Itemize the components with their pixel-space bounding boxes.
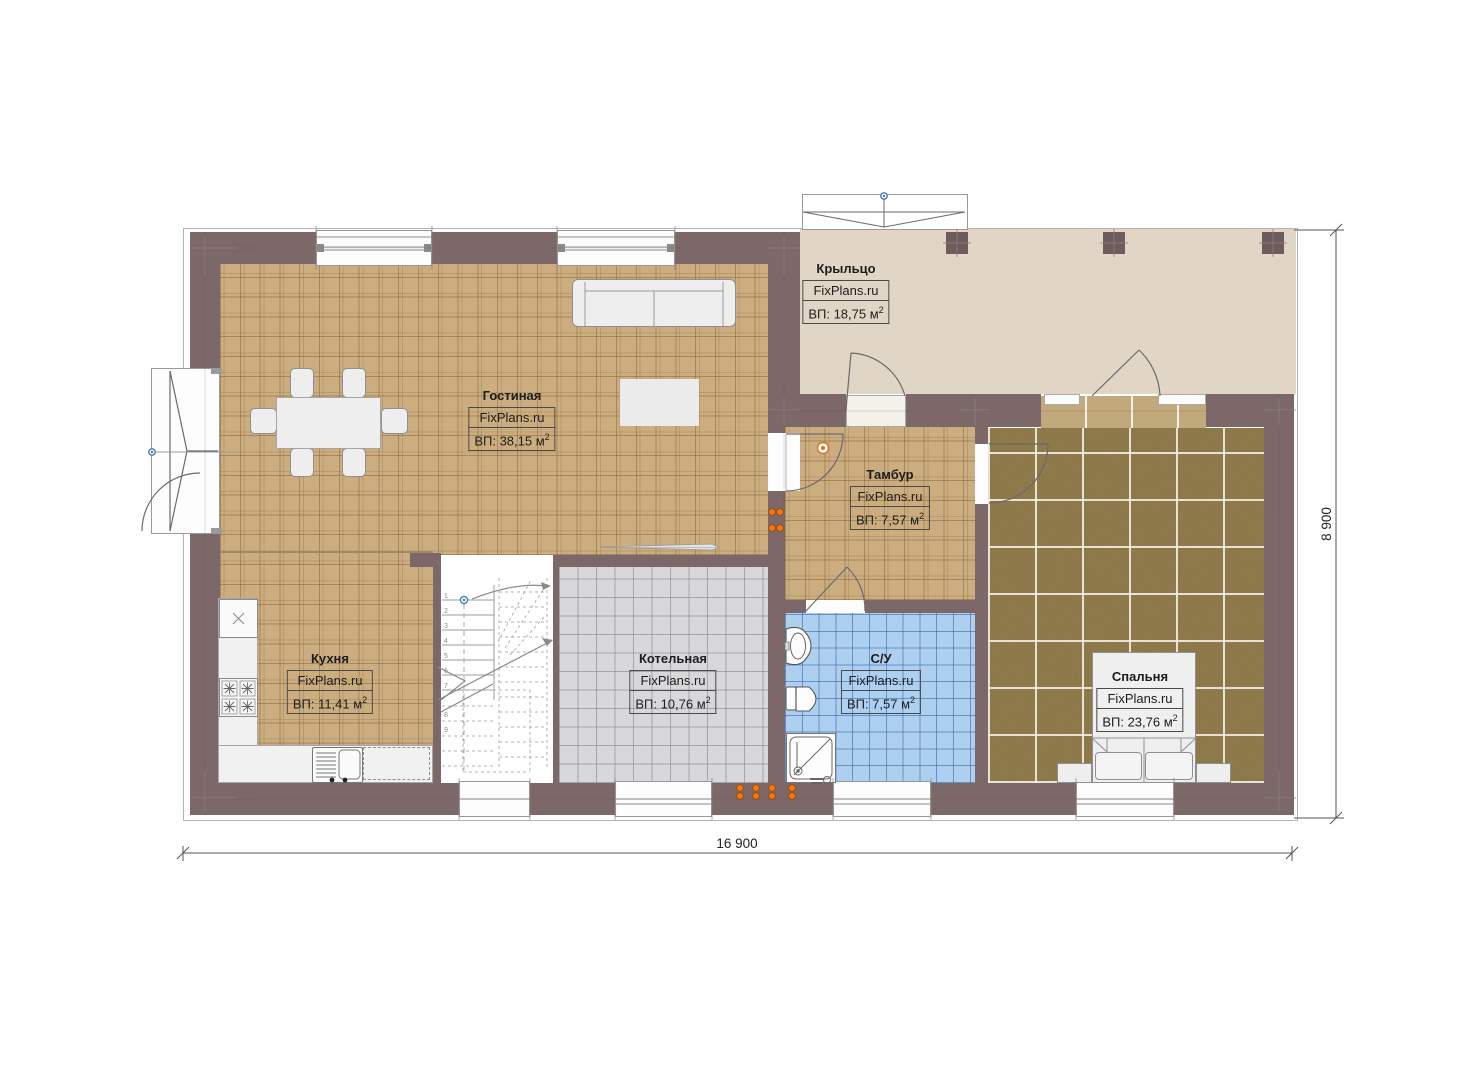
svg-text:8: 8 bbox=[444, 712, 448, 719]
svg-text:3: 3 bbox=[444, 623, 448, 630]
svg-text:9: 9 bbox=[444, 727, 448, 734]
svg-text:1: 1 bbox=[444, 593, 448, 600]
svg-text:5: 5 bbox=[444, 653, 448, 660]
svg-text:2: 2 bbox=[444, 608, 448, 615]
svg-text:4: 4 bbox=[444, 638, 448, 645]
svg-text:8 900: 8 900 bbox=[1319, 507, 1334, 541]
svg-text:7: 7 bbox=[444, 683, 448, 690]
svg-text:16 900: 16 900 bbox=[716, 836, 757, 851]
